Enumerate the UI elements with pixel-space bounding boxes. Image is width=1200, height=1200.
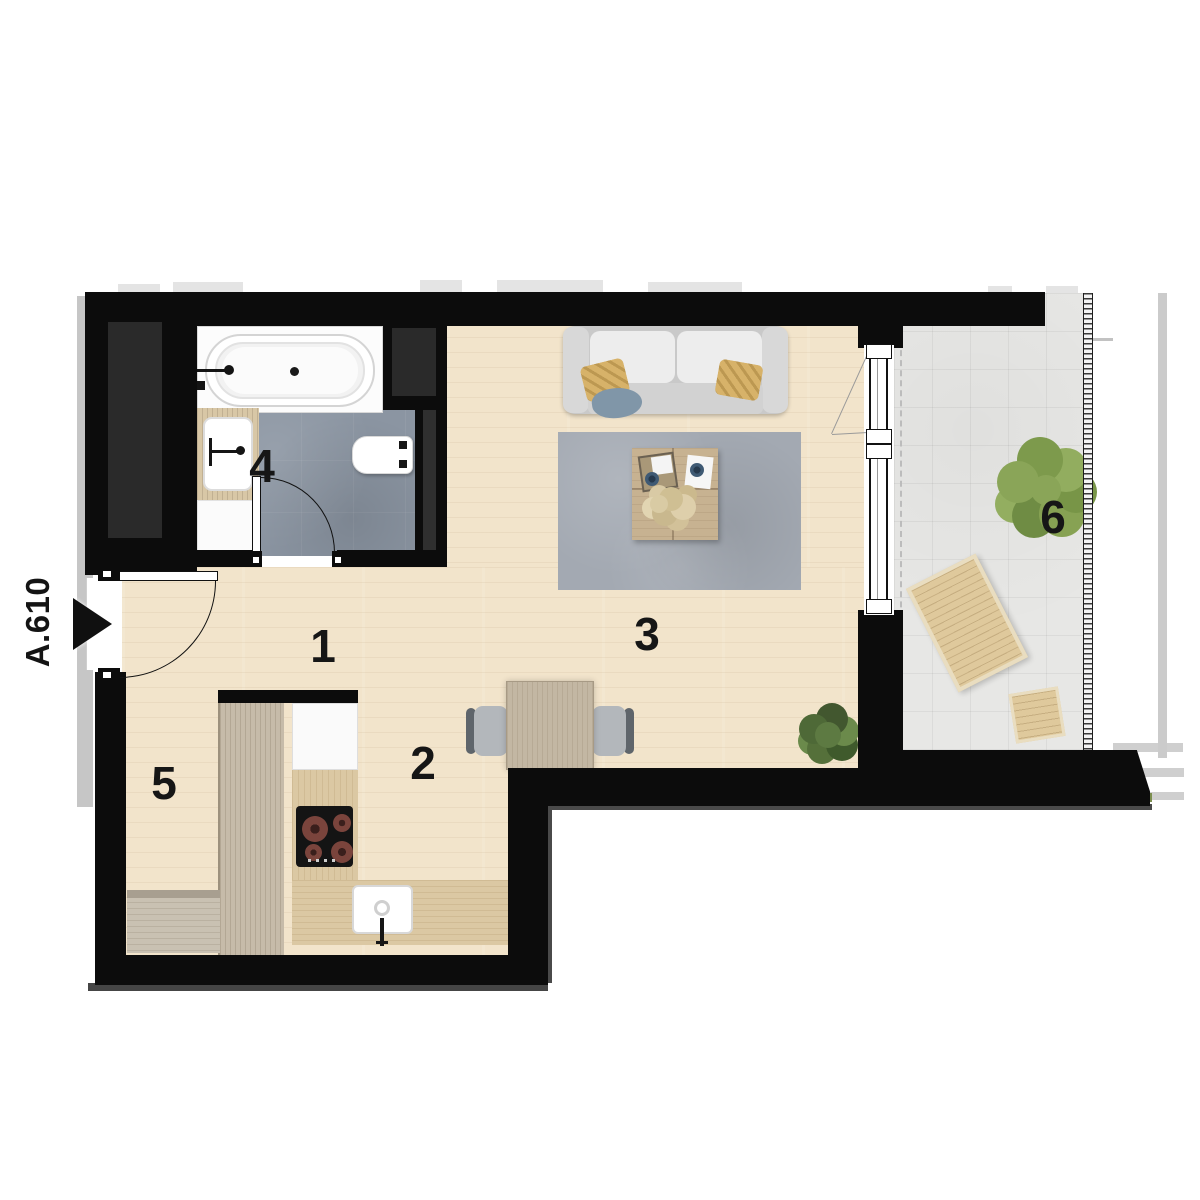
window-glazing-line xyxy=(886,348,888,612)
dining-chair-seat xyxy=(474,706,508,756)
cooktop-controls xyxy=(308,859,340,862)
dining-table xyxy=(506,681,594,770)
living-room-plant xyxy=(815,722,841,748)
fridge xyxy=(292,703,358,770)
window-frame-block xyxy=(866,344,892,359)
wardrobe-unit xyxy=(127,890,220,953)
balcony-stool xyxy=(1008,686,1065,743)
bathtub-faucet xyxy=(224,365,234,375)
room-label-hall: 1 xyxy=(298,623,348,669)
wall-balcony-bottom xyxy=(858,750,1150,806)
wall-bathroom-bottom-right xyxy=(337,550,447,567)
dining-chair-seat xyxy=(592,706,626,756)
wardrobe-top-band xyxy=(127,890,220,898)
kitchen-tall-cabinet xyxy=(218,703,284,957)
room-label-kitchen: 2 xyxy=(398,740,448,786)
unit-label: A.610 xyxy=(18,566,58,678)
wall-bathroom-bottom-left xyxy=(195,550,257,567)
shaft-inset xyxy=(108,322,162,538)
window-frame-block xyxy=(866,444,892,459)
neighbour-balcony-fragment xyxy=(1140,768,1184,777)
cooktop-burner xyxy=(333,814,351,832)
room-label-balcony: 6 xyxy=(1028,494,1078,540)
entrance-door-leaf xyxy=(118,571,218,581)
room-label-wardrobe: 5 xyxy=(139,760,189,806)
bathtub-drain xyxy=(290,367,299,376)
cooktop-burner xyxy=(302,816,328,842)
balcony-edge-line xyxy=(1093,338,1113,341)
entrance-jamb-inner xyxy=(103,571,111,577)
kitchen-faucet-base xyxy=(376,941,388,944)
window-glazing-line xyxy=(869,348,871,612)
wall-bottom-kitchen xyxy=(95,955,548,985)
entrance-arrow-icon xyxy=(73,598,112,650)
room-label-bathroom: 4 xyxy=(237,443,287,489)
toilet-hinge xyxy=(399,460,407,468)
wall-window-bottom xyxy=(858,610,903,770)
room-label-living-room: 3 xyxy=(622,611,672,657)
bathroom-cabinet xyxy=(197,500,257,552)
shaft-inset xyxy=(423,410,436,550)
bathroom-door-jamb-inner xyxy=(253,557,259,563)
toilet-hinge xyxy=(399,441,407,449)
window-glazing-line xyxy=(877,348,878,612)
entrance-jamb-inner xyxy=(103,672,111,678)
shaft-inset xyxy=(392,328,436,396)
bathtub-mixer xyxy=(197,381,205,390)
balcony-divider-bar xyxy=(1158,293,1167,758)
sofa-armrest xyxy=(762,327,788,413)
wall-living-bottom xyxy=(508,768,860,806)
balcony-railing xyxy=(1083,293,1093,750)
kitchen-sink-drain xyxy=(374,900,390,916)
cup xyxy=(690,463,704,477)
window-frame-block xyxy=(866,599,892,614)
table-flowers xyxy=(650,495,668,513)
wall-left-lower xyxy=(95,672,126,985)
cup xyxy=(645,472,659,486)
floor-plan: A.610 1 2 3 4 5 6 xyxy=(0,0,1200,1200)
wall-top xyxy=(85,292,1045,326)
window-frame-block xyxy=(866,429,892,444)
bathroom-door-jamb-inner xyxy=(335,557,341,563)
sofa-pillow xyxy=(714,358,764,401)
wall-kitchen-top xyxy=(218,690,358,703)
